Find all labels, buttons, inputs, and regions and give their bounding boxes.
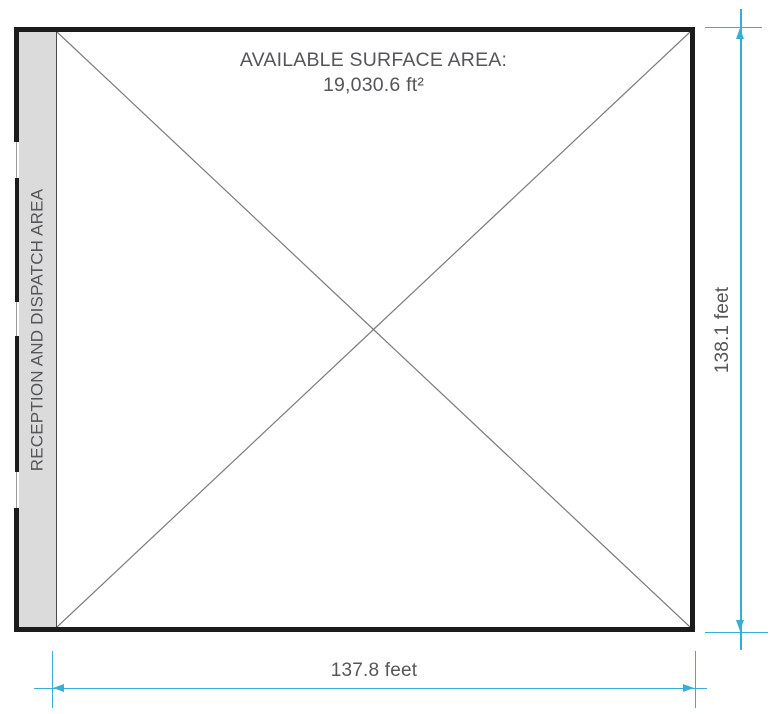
width-dimension-tick-left <box>52 651 54 708</box>
dim-arrow-down-icon <box>736 620 744 631</box>
area-title: AVAILABLE SURFACE AREA: <box>57 48 690 73</box>
door-gap-line <box>16 142 17 178</box>
door-gap-line <box>16 472 17 508</box>
area-value: 19,030.6 ft² <box>57 73 690 98</box>
area-label: AVAILABLE SURFACE AREA: 19,030.6 ft² <box>57 48 690 98</box>
height-dimension-tick-top <box>705 27 762 29</box>
dim-arrow-up-icon <box>736 28 744 39</box>
available-area <box>57 32 690 627</box>
height-dimension-tick-bottom <box>705 632 768 634</box>
reception-dispatch-strip: RECEPTION AND DISPATCH AREA <box>19 32 57 627</box>
width-dimension-line <box>34 688 707 690</box>
width-dimension-tick-right <box>695 651 697 708</box>
height-dimension-line <box>740 9 742 650</box>
dim-arrow-left-icon <box>53 684 64 692</box>
strip-label: RECEPTION AND DISPATCH AREA <box>28 188 48 471</box>
floor-plan: RECEPTION AND DISPATCH AREA AVAILABLE SU… <box>0 0 770 714</box>
wall-right <box>690 27 695 632</box>
door-gap-line <box>16 302 17 336</box>
diagonal-cross <box>57 32 690 627</box>
height-dimension-label: 138.1 feet <box>712 287 734 374</box>
width-dimension-label: 137.8 feet <box>331 660 418 682</box>
wall-bottom <box>14 627 695 632</box>
dim-arrow-right-icon <box>683 684 694 692</box>
